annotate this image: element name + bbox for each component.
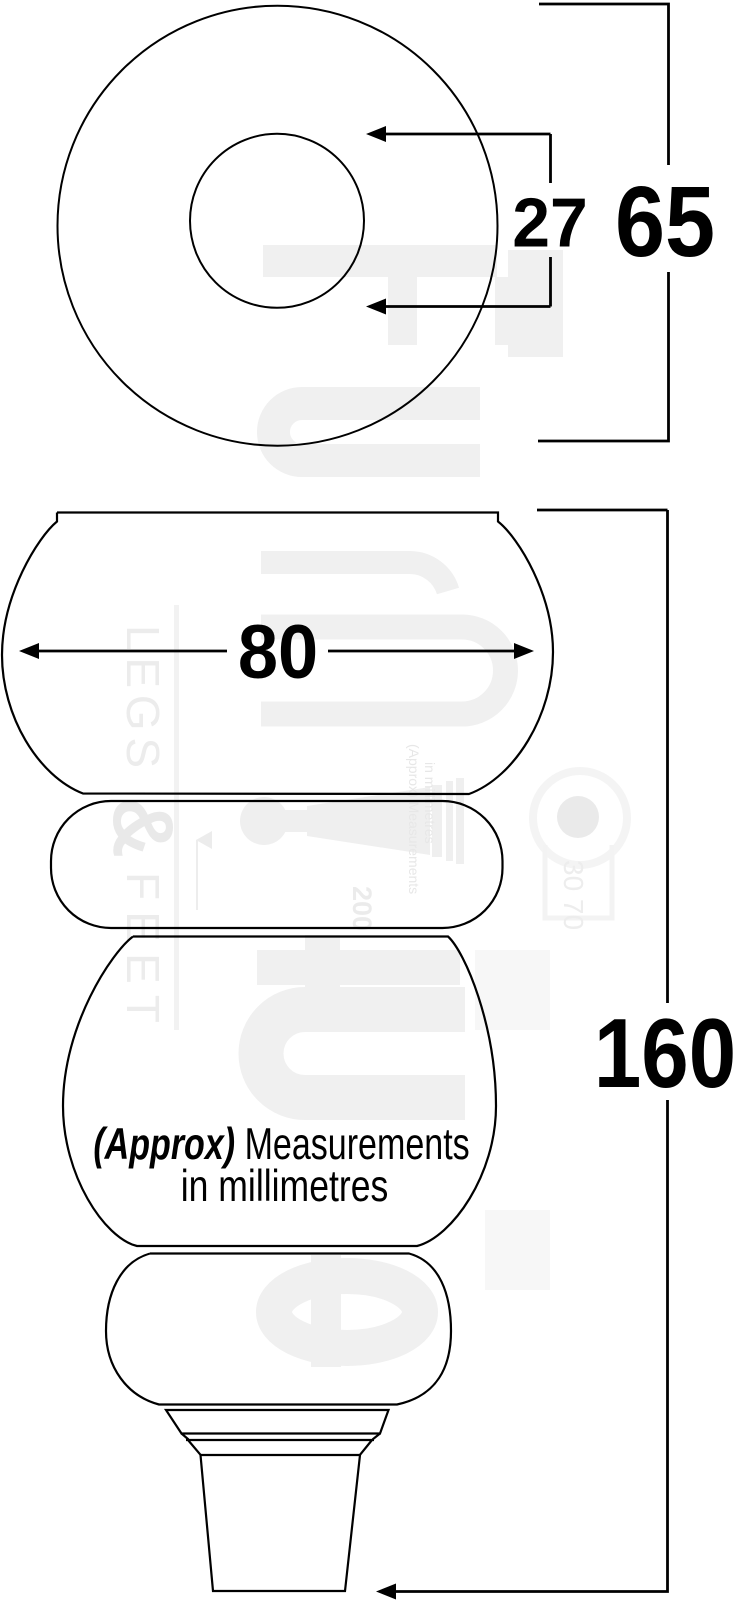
svg-text:200: 200 [347, 886, 377, 931]
svg-text:27: 27 [512, 183, 588, 261]
svg-text:in millimetres: in millimetres [422, 762, 438, 844]
svg-text:65: 65 [615, 167, 715, 278]
svg-text:80: 80 [238, 609, 318, 694]
svg-text:30 70: 30 70 [558, 860, 589, 930]
svg-text:LEGS: LEGS [117, 625, 169, 772]
svg-text:&: & [95, 797, 190, 858]
svg-text:(Approx) Measurements: (Approx) Measurements [406, 744, 422, 894]
svg-text:160: 160 [594, 1000, 736, 1109]
svg-text:in millimetres: in millimetres [181, 1161, 389, 1211]
